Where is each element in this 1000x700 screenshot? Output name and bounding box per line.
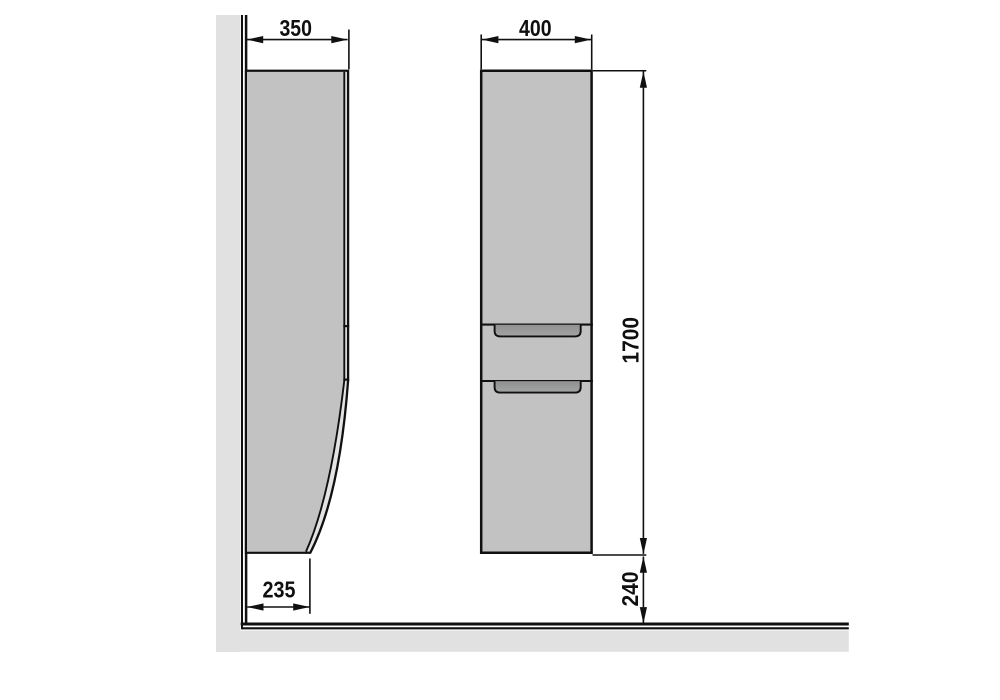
svg-text:235: 235 — [263, 577, 296, 603]
svg-text:240: 240 — [617, 572, 643, 607]
svg-text:400: 400 — [519, 15, 552, 41]
svg-text:350: 350 — [279, 15, 312, 41]
svg-text:1700: 1700 — [617, 317, 643, 364]
